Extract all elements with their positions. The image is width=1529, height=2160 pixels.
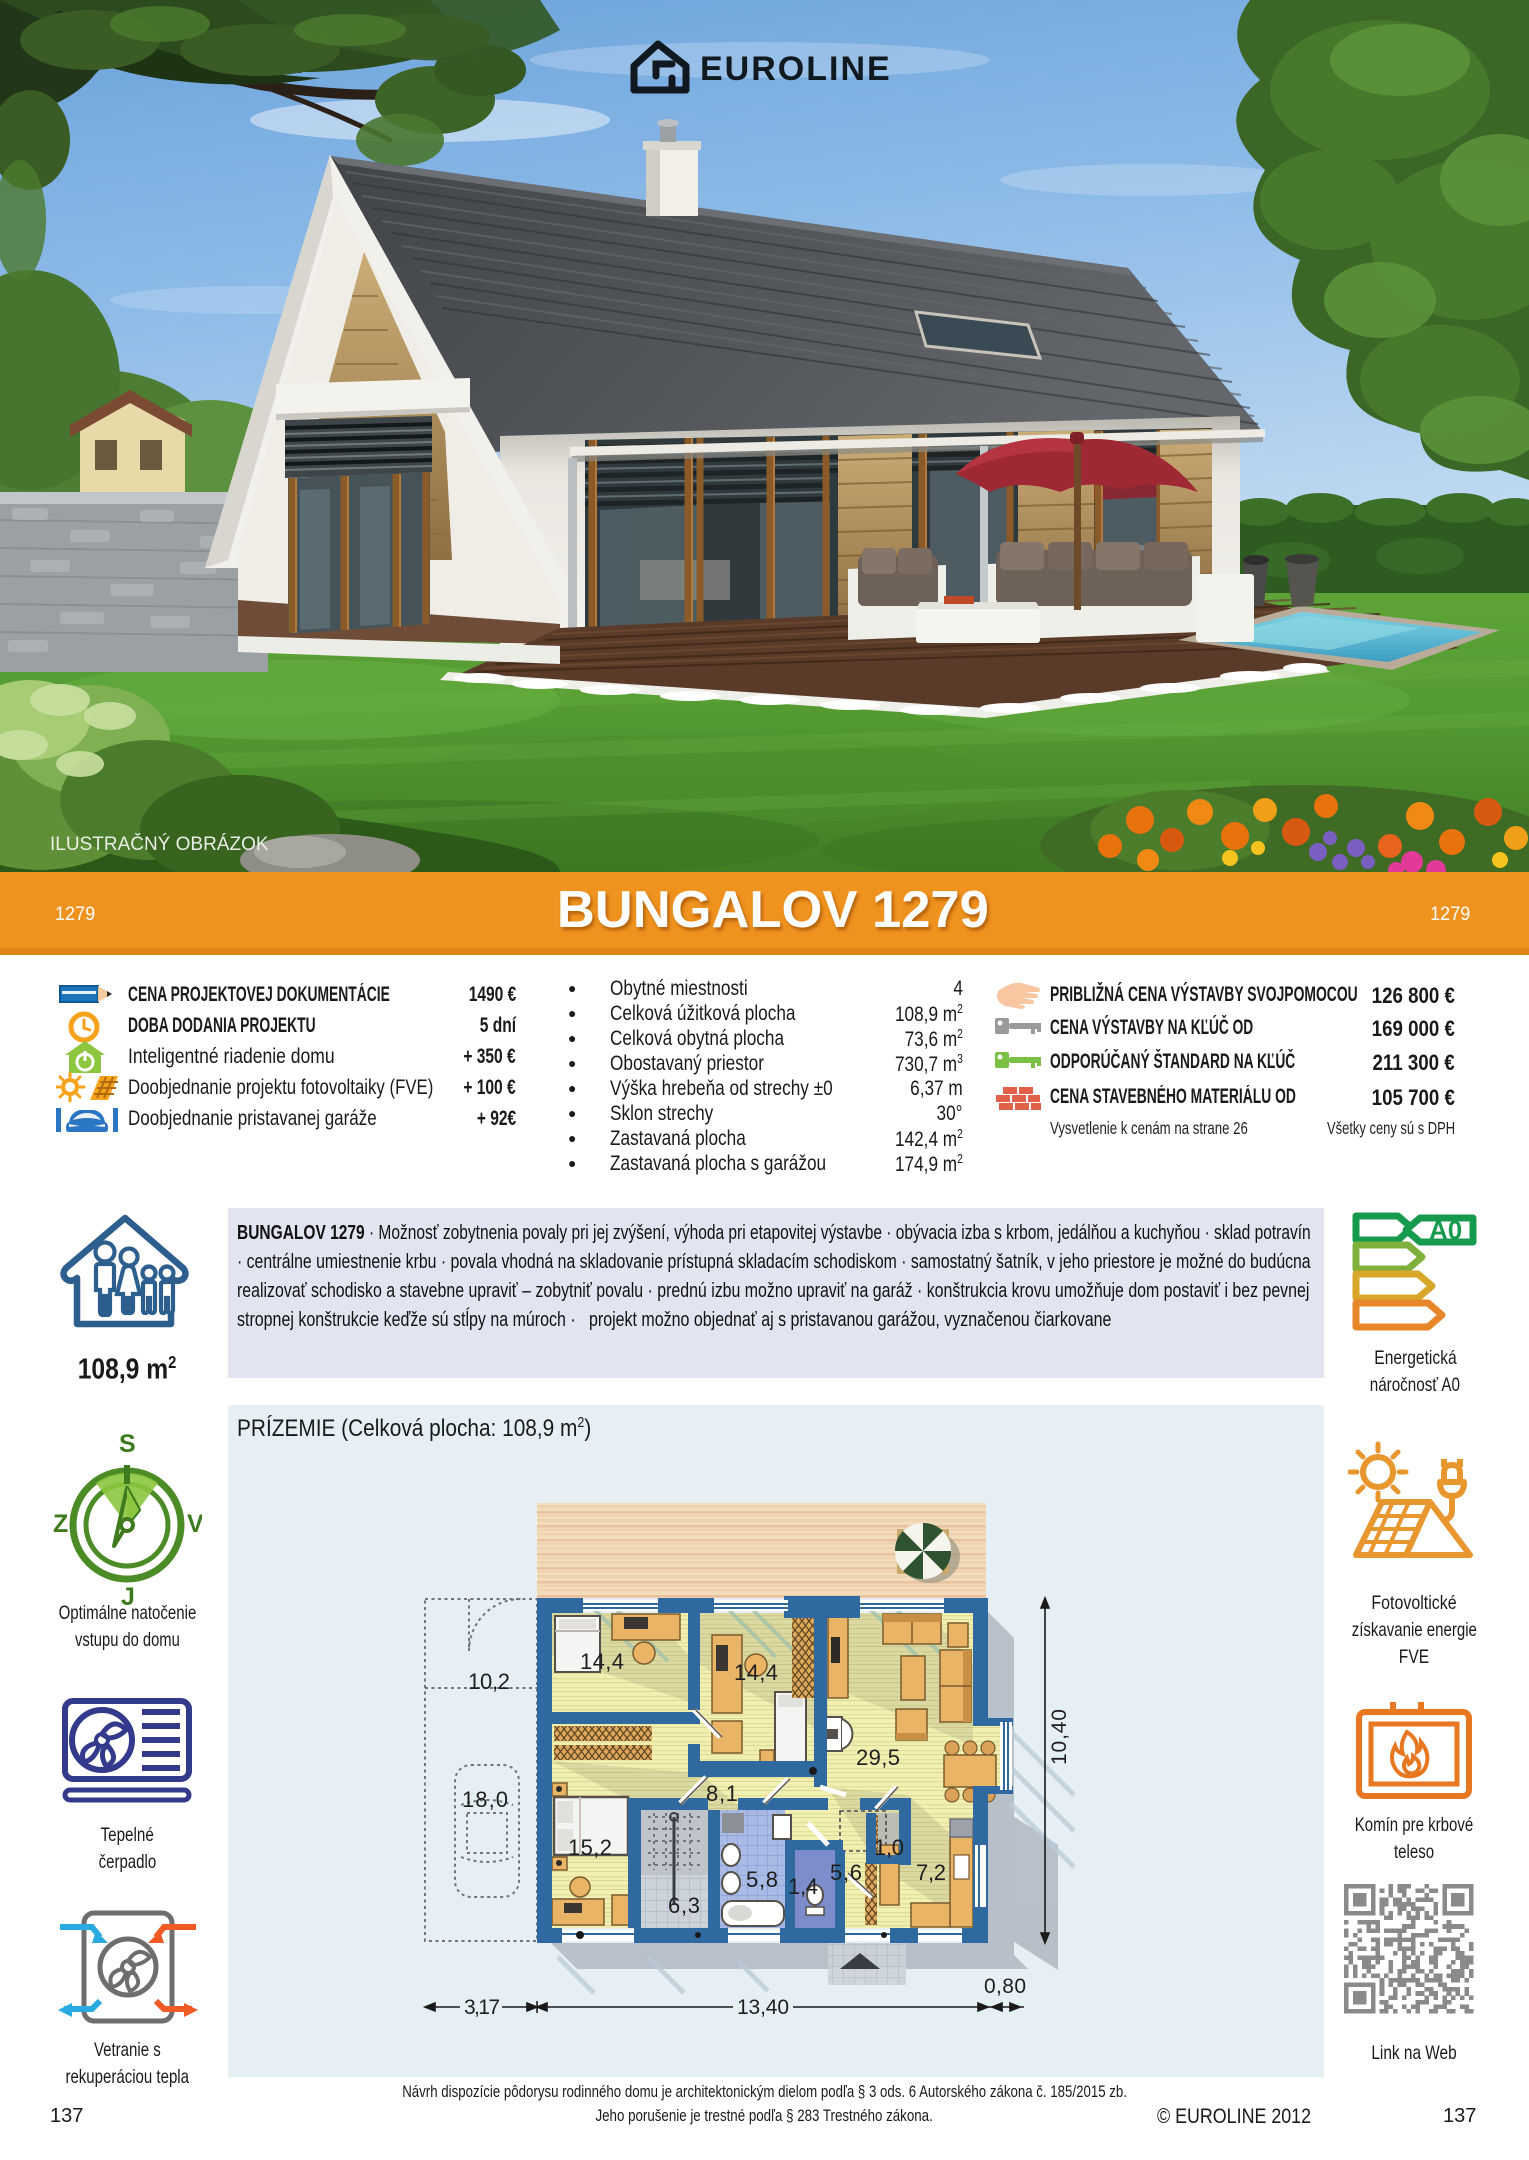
svg-text:0,80: 0,80: [984, 1975, 1026, 1998]
svg-text:1,0: 1,0: [874, 1835, 904, 1860]
svg-text:EUROLINE: EUROLINE: [700, 50, 892, 88]
svg-text:6,3: 6,3: [668, 1893, 700, 1918]
svg-text:8,1: 8,1: [706, 1781, 738, 1806]
svg-text:15,2: 15,2: [568, 1835, 612, 1860]
svg-text:3,17: 3,17: [464, 1996, 500, 2019]
svg-text:13,40: 13,40: [737, 1996, 789, 2019]
svg-text:5,6: 5,6: [830, 1860, 862, 1885]
svg-text:S: S: [119, 1430, 136, 1458]
svg-text:A0: A0: [1429, 1215, 1462, 1245]
svg-text:10,2: 10,2: [468, 1669, 510, 1694]
svg-text:ILUSTRAČNÝ OBRÁZOK: ILUSTRAČNÝ OBRÁZOK: [50, 833, 269, 855]
svg-text:7,2: 7,2: [916, 1860, 946, 1885]
svg-text:5,8: 5,8: [746, 1867, 778, 1892]
svg-text:1,4: 1,4: [788, 1874, 818, 1899]
svg-text:14,4: 14,4: [734, 1660, 778, 1685]
svg-text:29,5: 29,5: [856, 1745, 900, 1770]
svg-text:18,0: 18,0: [462, 1787, 508, 1812]
svg-text:Z: Z: [53, 1510, 68, 1538]
svg-text:V: V: [187, 1510, 202, 1538]
svg-text:10,40: 10,40: [1048, 1709, 1071, 1765]
svg-text:14,4: 14,4: [580, 1649, 624, 1674]
